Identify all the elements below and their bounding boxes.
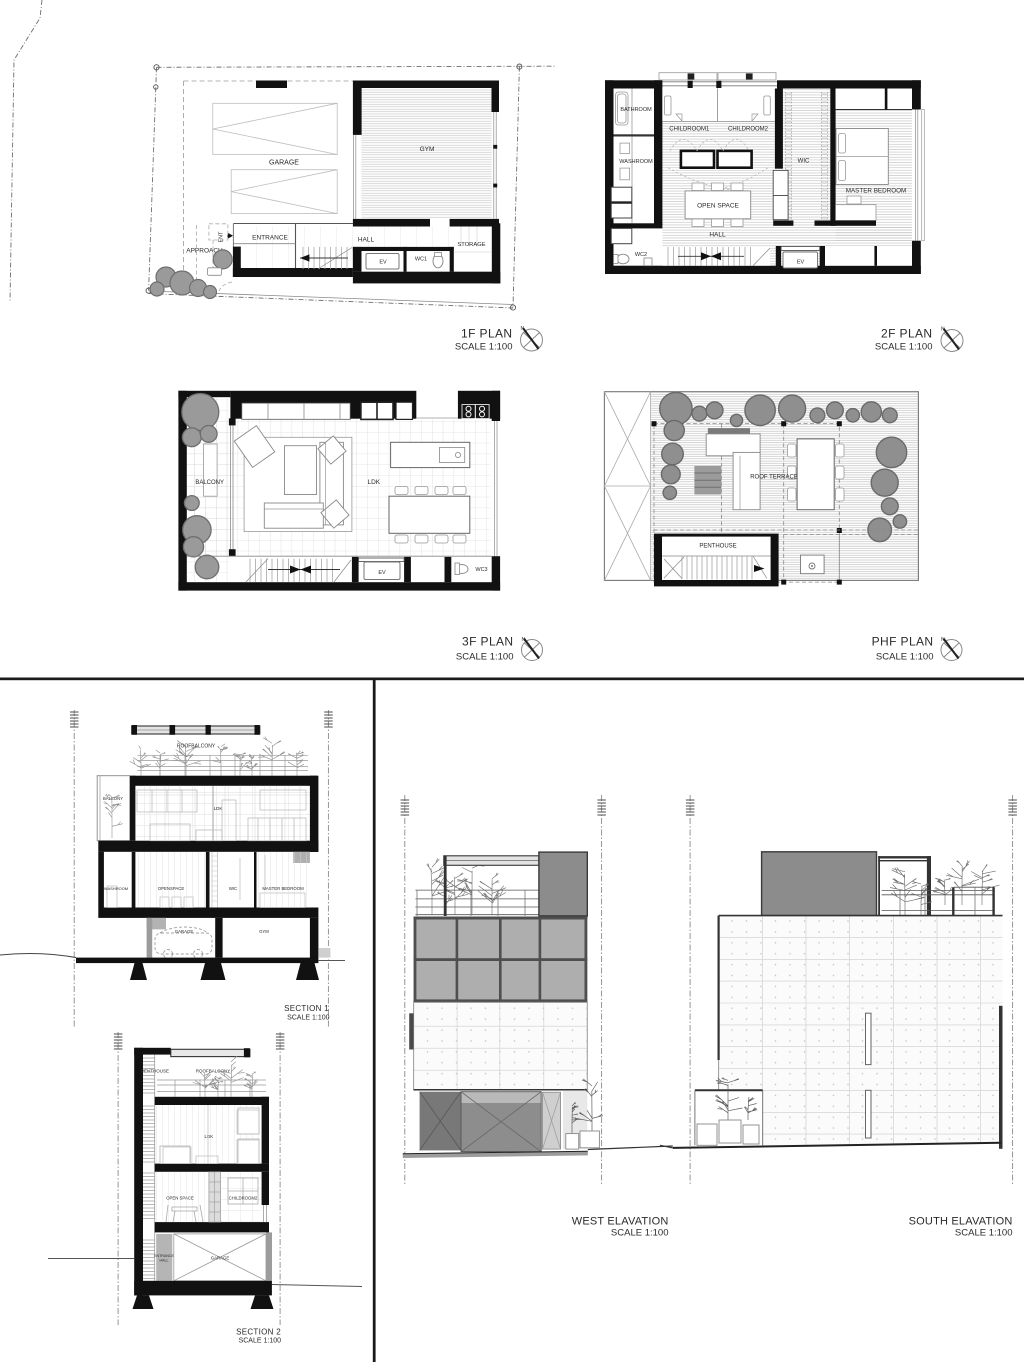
svg-text:HALL: HALL — [709, 232, 726, 239]
svg-text:3F PLAN: 3F PLAN — [462, 635, 514, 649]
svg-text:LDK: LDK — [214, 806, 223, 811]
svg-text:SCALE 1:100: SCALE 1:100 — [456, 652, 514, 663]
svg-text:ROOFBALCONY: ROOFBALCONY — [177, 744, 216, 750]
svg-text:GARAGE: GARAGE — [175, 929, 194, 934]
svg-text:WASHROOM: WASHROOM — [104, 886, 128, 891]
svg-text:LDK: LDK — [367, 479, 380, 486]
svg-text:GARAGE: GARAGE — [211, 1256, 230, 1261]
svg-text:OPEN SPACE: OPEN SPACE — [166, 1196, 194, 1201]
svg-text:BALCONY: BALCONY — [103, 796, 123, 801]
svg-text:WEST ELAVATION: WEST ELAVATION — [572, 1216, 669, 1228]
svg-text:MASTER BEDROOM: MASTER BEDROOM — [846, 188, 907, 195]
svg-text:BALCONY: BALCONY — [195, 480, 224, 486]
svg-text:GYM: GYM — [420, 146, 435, 153]
svg-text:SCALE 1:100: SCALE 1:100 — [875, 342, 933, 353]
svg-text:HALL: HALL — [160, 1259, 169, 1263]
svg-text:EV: EV — [378, 570, 386, 576]
svg-text:2F PLAN: 2F PLAN — [881, 327, 933, 341]
svg-text:GYM: GYM — [259, 929, 269, 934]
svg-text:SECTION 2: SECTION 2 — [236, 1328, 281, 1337]
svg-text:N: N — [941, 637, 945, 643]
svg-text:ENTRANCE: ENTRANCE — [252, 235, 288, 242]
svg-text:OPEN SPACE: OPEN SPACE — [697, 203, 739, 210]
svg-text:SOUTH ELAVATION: SOUTH ELAVATION — [909, 1216, 1013, 1228]
svg-text:N: N — [521, 326, 525, 332]
svg-text:1F PLAN: 1F PLAN — [461, 327, 513, 341]
svg-text:N: N — [522, 637, 526, 643]
svg-text:N: N — [941, 327, 945, 333]
svg-text:ENT: ENT — [219, 231, 225, 243]
svg-text:CHILDROOM2: CHILDROOM2 — [728, 127, 769, 133]
svg-text:SCALE 1:100: SCALE 1:100 — [611, 1228, 669, 1239]
svg-text:HALL: HALL — [358, 237, 375, 244]
svg-text:ROOF TERRACE: ROOF TERRACE — [750, 475, 798, 481]
svg-text:CHILDROOM1: CHILDROOM1 — [669, 127, 710, 133]
svg-text:PENTHOUSE: PENTHOUSE — [699, 544, 736, 550]
svg-text:SCALE 1:100: SCALE 1:100 — [287, 1015, 330, 1022]
svg-text:EV: EV — [379, 260, 387, 266]
svg-text:SCALE 1:100: SCALE 1:100 — [876, 652, 934, 663]
svg-text:WIC: WIC — [229, 886, 237, 891]
svg-text:PHF PLAN: PHF PLAN — [872, 635, 934, 649]
svg-text:WC2: WC2 — [635, 252, 647, 258]
svg-text:SECTION 1: SECTION 1 — [284, 1004, 329, 1013]
svg-text:GARAGE: GARAGE — [269, 160, 299, 167]
svg-text:SCALE 1:100: SCALE 1:100 — [955, 1228, 1013, 1239]
svg-text:OPENSPACE: OPENSPACE — [158, 886, 185, 891]
svg-text:LDK: LDK — [205, 1134, 214, 1139]
svg-text:EV: EV — [797, 260, 805, 266]
svg-text:WC1: WC1 — [415, 257, 427, 263]
svg-text:SCALE 1:100: SCALE 1:100 — [239, 1338, 282, 1345]
svg-text:STORAGE: STORAGE — [457, 242, 485, 248]
svg-text:ENTRANCE: ENTRANCE — [154, 1254, 174, 1258]
svg-text:WIC: WIC — [798, 159, 810, 165]
svg-text:MASTER BEDROOM: MASTER BEDROOM — [262, 886, 304, 891]
svg-text:SCALE 1:100: SCALE 1:100 — [455, 342, 513, 353]
svg-text:BATHROOM: BATHROOM — [620, 107, 652, 113]
svg-text:WC3: WC3 — [475, 567, 487, 573]
svg-text:WASHROOM: WASHROOM — [619, 159, 653, 165]
